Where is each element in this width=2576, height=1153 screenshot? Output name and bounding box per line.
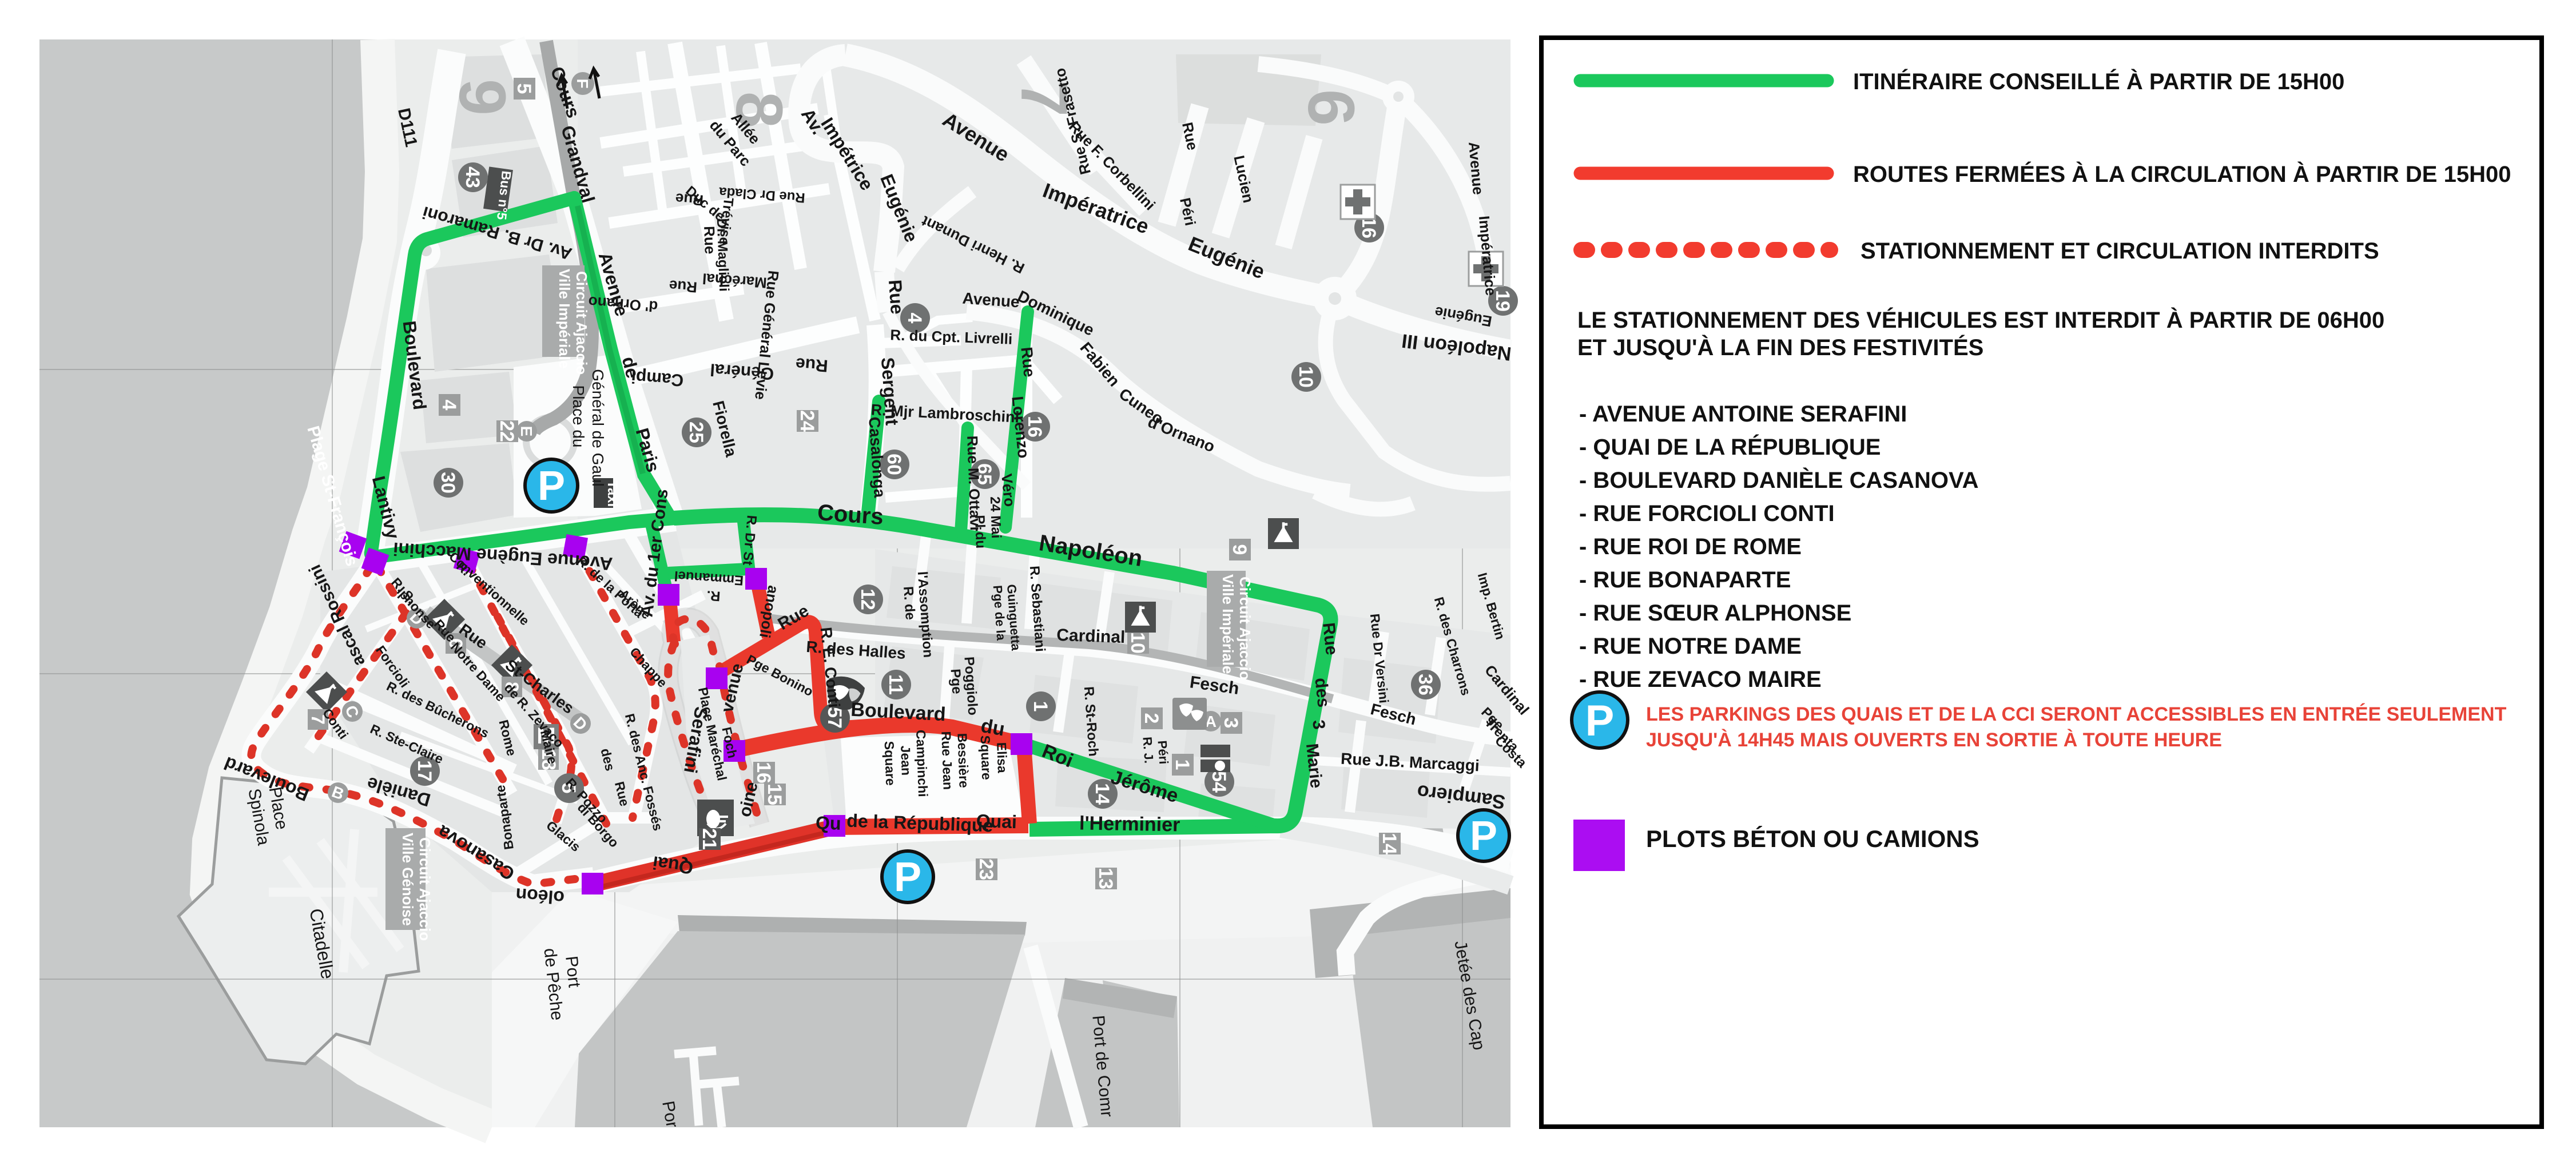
svg-text:Péri: Péri	[1155, 740, 1171, 765]
svg-text:Campinchi: Campinchi	[913, 730, 931, 797]
svg-text:Cardinal: Cardinal	[1056, 626, 1126, 647]
svg-text:Ville Génoise: Ville Génoise	[399, 833, 416, 926]
svg-text:2: 2	[1140, 713, 1162, 724]
svg-text:14: 14	[1378, 833, 1400, 854]
svg-text:Général de Gaul: Général de Gaul	[589, 369, 607, 486]
svg-text:Place du: Place du	[570, 385, 587, 448]
svg-text:STATIONNEMENT ET CIRCULATION I: STATIONNEMENT ET CIRCULATION INTERDITS	[1861, 238, 2379, 264]
svg-text:Pl.du: Pl.du	[972, 515, 988, 549]
svg-text:- AVENUE ANTOINE SERAFINI: - AVENUE ANTOINE SERAFINI	[1579, 401, 1907, 427]
svg-text:- RUE ZEVACO MAIRE: - RUE ZEVACO MAIRE	[1579, 667, 1822, 692]
svg-text:1: 1	[1171, 760, 1193, 770]
svg-text:Square: Square	[978, 735, 995, 780]
svg-text:9: 9	[446, 79, 519, 116]
svg-text:24: 24	[796, 410, 818, 432]
svg-text:11: 11	[885, 674, 907, 695]
svg-text:ROUTES FERMÉES À LA CIRCULATIO: ROUTES FERMÉES À LA CIRCULATION À PARTIR…	[1853, 161, 2511, 187]
svg-text:Circuit Ajaccio: Circuit Ajaccio	[573, 271, 590, 375]
svg-text:- RUE BONAPARTE: - RUE BONAPARTE	[1579, 567, 1791, 593]
svg-text:30: 30	[437, 472, 459, 494]
svg-text:23: 23	[975, 858, 997, 880]
svg-text:l'Herminier: l'Herminier	[1079, 812, 1180, 836]
svg-text:21: 21	[698, 828, 720, 850]
svg-text:16: 16	[753, 762, 774, 784]
svg-text:Rue: Rue	[701, 226, 719, 255]
svg-text:3: 3	[1220, 718, 1242, 729]
svg-text:15: 15	[764, 784, 785, 805]
svg-text:22: 22	[496, 420, 518, 442]
svg-text:Circuit Ajaccio: Circuit Ajaccio	[1237, 576, 1254, 680]
svg-text:P: P	[538, 463, 565, 509]
svg-text:oléon: oléon	[515, 884, 565, 908]
svg-text:Cours: Cours	[817, 500, 884, 530]
svg-text:- QUAI DE LA RÉPUBLIQUE: - QUAI DE LA RÉPUBLIQUE	[1579, 434, 1881, 460]
svg-text:- RUE FORCIOLI CONTI: - RUE FORCIOLI CONTI	[1579, 501, 1835, 526]
svg-text:16: 16	[1358, 217, 1380, 238]
svg-text:Bessière: Bessière	[955, 733, 971, 788]
svg-text:Ville Impériale: Ville Impériale	[1219, 574, 1237, 674]
svg-text:Pge: Pge	[947, 669, 964, 695]
svg-text:10: 10	[1295, 366, 1317, 388]
svg-text:9: 9	[1229, 544, 1250, 555]
svg-text:Qu: Qu	[816, 812, 842, 834]
svg-text:5: 5	[513, 84, 535, 94]
svg-text:36: 36	[1414, 674, 1436, 695]
svg-text:1: 1	[1029, 701, 1051, 712]
svg-text:Jean: Jean	[898, 745, 914, 776]
svg-text:P: P	[1585, 697, 1615, 745]
svg-text:ET JUSQU'À LA FIN DES FESTIVIT: ET JUSQU'À LA FIN DES FESTIVITÉS	[1577, 335, 1983, 360]
svg-text:Rue: Rue	[669, 277, 698, 296]
svg-text:LES PARKINGS DES QUAIS ET DE L: LES PARKINGS DES QUAIS ET DE LA CCI SERO…	[1646, 703, 2507, 725]
svg-text:17: 17	[414, 760, 435, 782]
svg-text:- RUE NOTRE DAME: - RUE NOTRE DAME	[1579, 634, 1802, 659]
svg-text:Quai: Quai	[976, 810, 1017, 832]
svg-text:Rue: Rue	[1319, 622, 1341, 656]
svg-text:Port: Port	[562, 955, 584, 989]
svg-text:24 Mai: 24 Mai	[987, 496, 1004, 539]
svg-text:Rue: Rue	[1017, 346, 1038, 378]
svg-text:R. de: R. de	[900, 586, 918, 620]
svg-text:- RUE ROI DE ROME: - RUE ROI DE ROME	[1579, 534, 1802, 559]
svg-text:54: 54	[1208, 771, 1230, 793]
svg-text:des: des	[1311, 677, 1333, 709]
svg-text:Circuit Ajaccio: Circuit Ajaccio	[416, 837, 434, 941]
svg-text:Campi: Campi	[630, 367, 684, 389]
svg-text:25: 25	[685, 422, 707, 443]
svg-text:3: 3	[1309, 719, 1329, 730]
svg-text:10: 10	[1127, 632, 1148, 654]
svg-text:Rue: Rue	[675, 190, 704, 209]
svg-text:R. J.: R. J.	[1140, 736, 1156, 764]
svg-text:- RUE SŒUR ALPHONSE: - RUE SŒUR ALPHONSE	[1579, 601, 1851, 626]
svg-text:Rue: Rue	[885, 279, 908, 315]
svg-text:43: 43	[462, 166, 483, 188]
svg-text:E: E	[518, 426, 535, 437]
svg-text:13: 13	[1095, 868, 1116, 889]
svg-text:LE STATIONNEMENT DES VÉHICULES: LE STATIONNEMENT DES VÉHICULES EST INTER…	[1577, 307, 2384, 333]
svg-text:4: 4	[904, 313, 925, 324]
svg-text:ITINÉRAIRE CONSEILLÉ À PARTIR: ITINÉRAIRE CONSEILLÉ À PARTIR DE 15H00	[1853, 69, 2344, 94]
svg-text:4: 4	[438, 400, 460, 411]
svg-text:- BOULEVARD DANIÈLE CASANOVA: - BOULEVARD DANIÈLE CASANOVA	[1579, 467, 1979, 493]
svg-text:R.: R.	[706, 587, 721, 604]
svg-text:JUSQU'À 14H45 MAIS OUVERTS EN: JUSQU'À 14H45 MAIS OUVERTS EN SORTIE À T…	[1646, 729, 2222, 751]
svg-text:Ville Impériale: Ville Impériale	[556, 269, 573, 368]
svg-text:Rue: Rue	[795, 354, 829, 375]
svg-text:Square: Square	[882, 741, 899, 786]
svg-text:Elisa: Elisa	[994, 742, 1010, 773]
svg-text:F: F	[574, 78, 591, 88]
svg-text:6: 6	[1294, 89, 1367, 126]
svg-text:57: 57	[824, 707, 845, 729]
svg-text:12: 12	[857, 589, 878, 610]
svg-text:P: P	[1470, 813, 1497, 859]
svg-text:Rue Jean: Rue Jean	[939, 731, 956, 790]
svg-text:PLOTS BÉTON OU CAMIONS: PLOTS BÉTON OU CAMIONS	[1646, 825, 1979, 852]
svg-text:P: P	[894, 854, 921, 900]
